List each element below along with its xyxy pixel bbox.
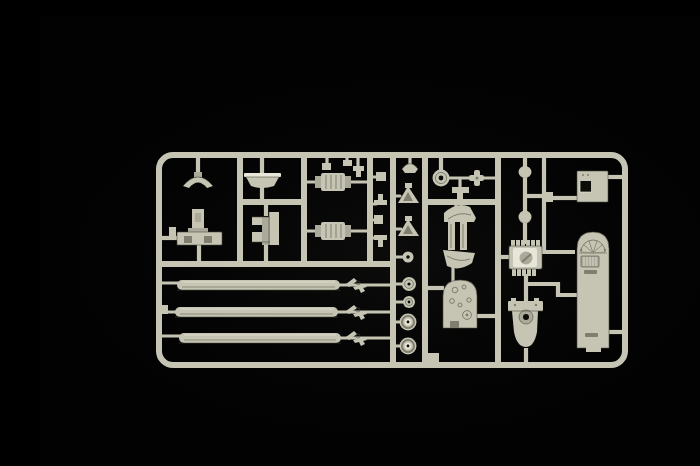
sprue-photo	[40, 16, 700, 466]
rotor-blade-1	[177, 280, 340, 290]
intake-ball-lower	[519, 211, 532, 224]
wheel-3	[400, 314, 417, 331]
wheel-1	[402, 277, 416, 291]
wheel-4	[400, 338, 417, 355]
instrument-panel-part	[443, 280, 477, 328]
pulley-disc-part	[433, 170, 450, 187]
sprue-svg	[40, 16, 700, 466]
rotor-blade-3	[179, 333, 341, 343]
rotor-blade-2	[175, 307, 338, 317]
intake-ball-upper	[519, 166, 532, 178]
access-hatch-part	[577, 171, 608, 202]
linkage-ball-part	[403, 252, 414, 263]
wheel-2	[403, 296, 415, 308]
cabin-door-part	[577, 232, 609, 352]
